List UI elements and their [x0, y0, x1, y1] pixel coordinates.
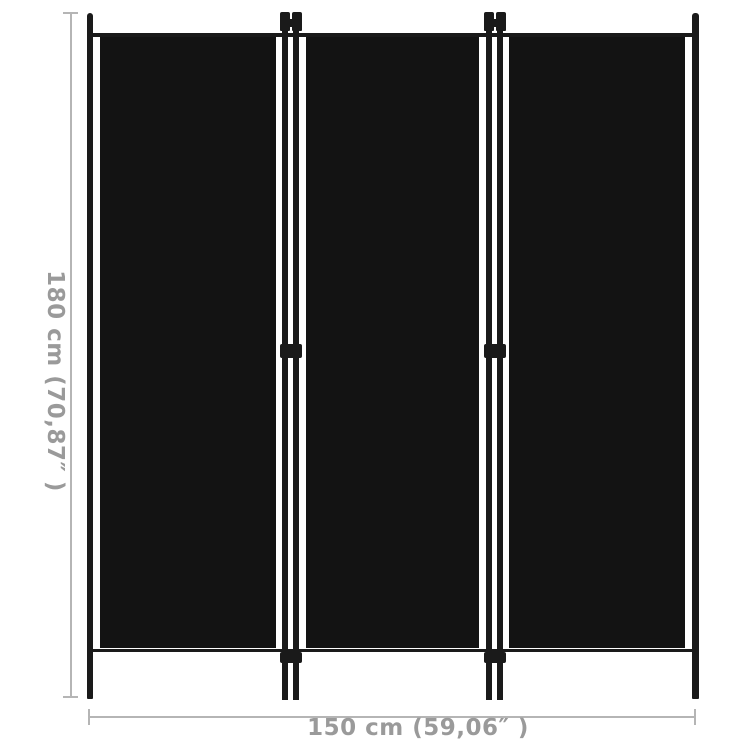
- top-rail-panel-2: [285, 33, 501, 37]
- hinge-bottom-knuckle: [280, 652, 302, 663]
- left-frame-pole: [87, 13, 93, 699]
- hinge-column-1: [280, 12, 302, 700]
- height-dimension-top-tick: [63, 12, 78, 14]
- divider-panel-3: [509, 33, 685, 648]
- divider-panel-1: [100, 33, 276, 648]
- width-dimension-label: 150 cm (59,06″ ): [307, 714, 529, 742]
- height-dimension-label: 180 cm (70,87″ ): [41, 270, 69, 492]
- hinge-top-connector: [488, 19, 502, 27]
- right-frame-pole: [692, 13, 699, 699]
- top-rail-panel-3: [488, 33, 696, 37]
- bottom-rail-panel-2: [285, 649, 501, 652]
- hinge-column-2: [484, 12, 506, 700]
- hinge-middle-knuckle: [280, 344, 302, 358]
- divider-panel-2: [306, 33, 479, 648]
- hinge-bottom-knuckle: [484, 652, 506, 663]
- bottom-rail-panel-3: [488, 649, 696, 652]
- hinge-middle-knuckle: [484, 344, 506, 358]
- top-rail-panel-1: [90, 33, 296, 37]
- room-divider-dimension-diagram: 180 cm (70,87″ ): [0, 0, 750, 750]
- bottom-rail-panel-1: [90, 649, 296, 652]
- width-dimension-right-tick: [694, 709, 696, 725]
- height-dimension-line: [70, 13, 72, 697]
- height-dimension-bottom-tick: [63, 696, 78, 698]
- width-dimension-left-tick: [88, 709, 90, 725]
- hinge-top-connector: [284, 19, 298, 27]
